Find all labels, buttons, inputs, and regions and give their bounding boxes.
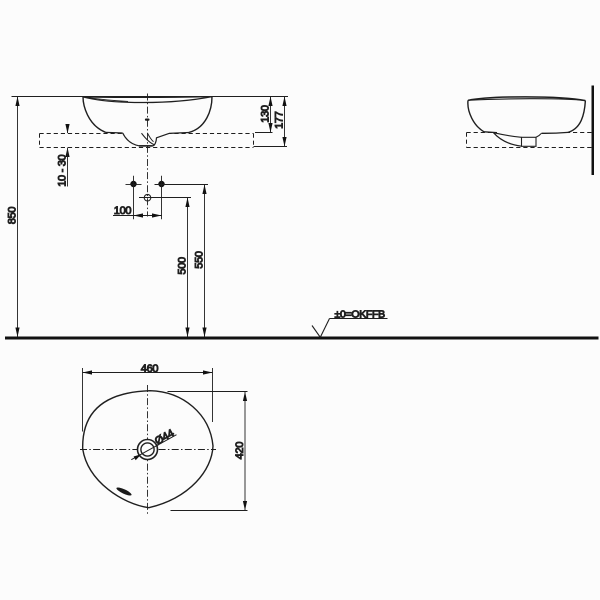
svg-text:130: 130 bbox=[260, 105, 272, 123]
svg-text:177: 177 bbox=[274, 111, 286, 129]
svg-text:550: 550 bbox=[194, 251, 206, 269]
svg-text:460: 460 bbox=[141, 363, 159, 375]
svg-text:10 - 30: 10 - 30 bbox=[57, 154, 69, 186]
svg-text:420: 420 bbox=[234, 442, 246, 460]
svg-text:100: 100 bbox=[114, 205, 132, 217]
svg-text:±0=OKFFB: ±0=OKFFB bbox=[335, 308, 386, 320]
svg-text:500: 500 bbox=[177, 257, 189, 275]
svg-text:850: 850 bbox=[7, 207, 19, 225]
